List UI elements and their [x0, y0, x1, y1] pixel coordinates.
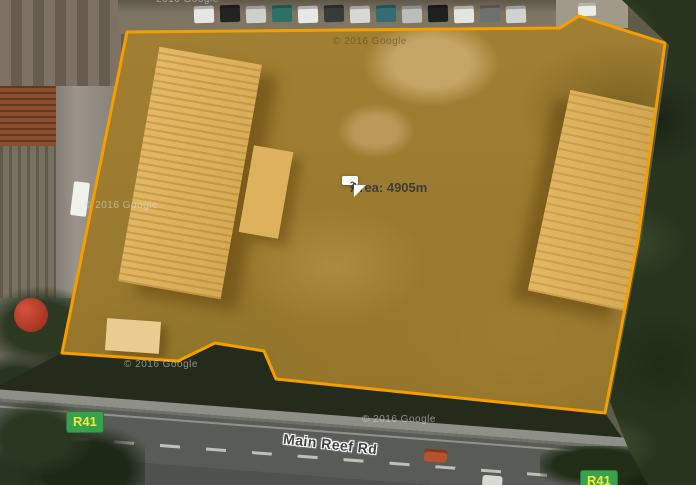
parked-car [402, 6, 423, 24]
parked-car [428, 5, 449, 23]
parked-car [324, 5, 345, 23]
route-badge-r41: R41 [66, 411, 104, 433]
parked-car [350, 6, 371, 24]
google-watermark: © 2016 Google [84, 200, 158, 211]
car-on-road [424, 448, 448, 463]
google-watermark: © 2016 Google [124, 359, 198, 370]
parked-car [298, 6, 319, 24]
map-canvas[interactable]: 2016 Google © 2016 Google © 2016 Google … [0, 0, 696, 485]
parked-car [220, 5, 241, 23]
parked-car [480, 5, 501, 23]
parked-car [506, 6, 527, 24]
google-watermark: © 2016 Google [333, 36, 407, 47]
area-tooltip-bubble: Area: 4905m2 × [342, 176, 358, 185]
car-on-road [482, 475, 503, 485]
route-badge-r41-partial: R41 [580, 470, 618, 485]
imagery-rooftops [0, 0, 124, 88]
parked-car [194, 6, 215, 24]
parked-car [376, 5, 397, 23]
google-watermark: 2016 Google [156, 0, 219, 5]
parked-car [246, 6, 267, 24]
parked-car [454, 6, 475, 24]
tooltip-pointer [354, 185, 366, 197]
imagery-red-rooftop [14, 298, 48, 332]
imagery-rust-roof [0, 86, 56, 148]
parked-car [578, 3, 596, 17]
measured-area-polygon[interactable] [62, 16, 665, 413]
parked-car [272, 5, 293, 23]
google-watermark: © 2016 Google [362, 414, 436, 425]
imagery-gray-buildings [0, 146, 56, 298]
